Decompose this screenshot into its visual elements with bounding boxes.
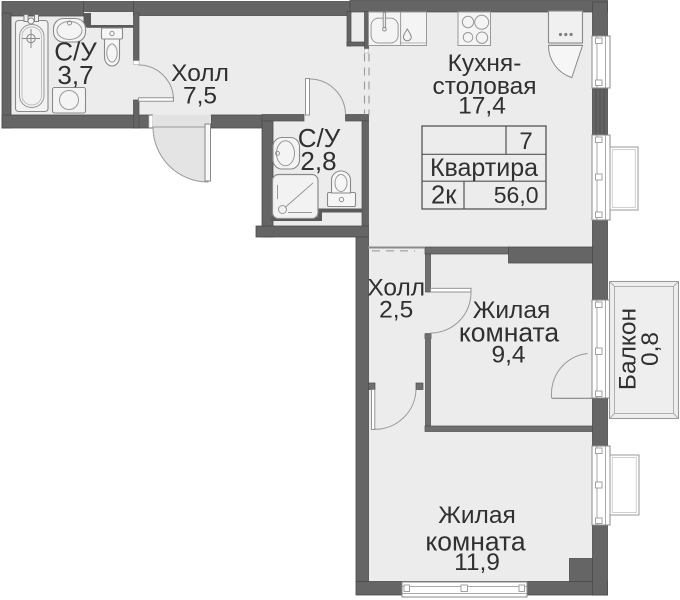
svg-text:9,4: 9,4	[491, 342, 525, 369]
svg-text:7,5: 7,5	[183, 83, 217, 110]
svg-text:2,5: 2,5	[379, 297, 413, 324]
svg-text:Квартира: Квартира	[430, 154, 538, 182]
svg-text:3,7: 3,7	[57, 60, 93, 90]
svg-text:Жилая: Жилая	[438, 502, 516, 529]
svg-text:11,9: 11,9	[454, 549, 500, 576]
svg-text:0,8: 0,8	[637, 332, 664, 366]
svg-text:56,0: 56,0	[494, 182, 539, 208]
svg-text:2,8: 2,8	[300, 146, 336, 176]
svg-text:2к: 2к	[431, 182, 457, 210]
svg-text:17,4: 17,4	[458, 93, 506, 120]
svg-text:7: 7	[519, 128, 532, 155]
